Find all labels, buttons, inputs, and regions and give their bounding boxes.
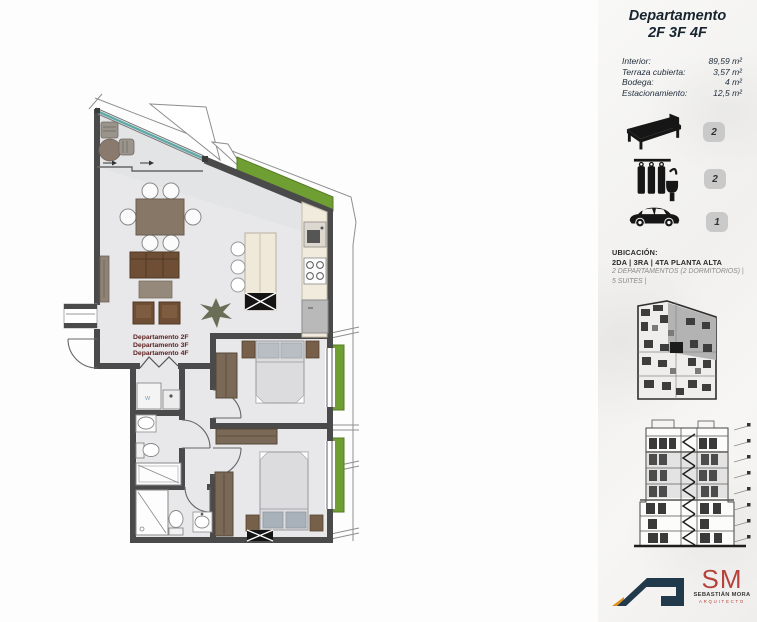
spec-label: Terraza cubierta: [622,67,685,78]
floorplan-brochure-page: { "panel": { "title": { "line1": "Depart… [0,0,757,622]
ubicacion-heading: UBICACIÓN: [612,248,752,258]
architect-name: SEBASTIÁN MORA [690,592,754,598]
spec-label: Interior: [622,56,651,67]
ubicacion-detail2: 5 SUITES | [612,277,752,287]
spec-label: Bodega: [622,77,654,88]
spec-value: 89,59 m² [708,56,742,67]
washer-label: W [145,396,151,402]
bed-icon [625,112,683,159]
spec-row-estacionamiento: Estacionamiento: 12,5 m² [622,88,742,99]
unit-label-3f: Departamento 3F [133,342,189,349]
architect-logo: SM SEBASTIÁN MORA ARQUITECTO [690,567,754,604]
spec-value: 12,5 m² [713,88,742,99]
unit-label-2f: Departamento 2F [133,334,189,341]
ag-developer-logo [612,578,684,606]
car-icon [626,202,682,235]
architect-role: ARQUITECTO [690,599,754,604]
spec-value: 3,57 m² [713,67,742,78]
bathroom-count-badge: 2 [704,169,726,189]
spec-row-terraza: Terraza cubierta: 3,57 m² [622,67,742,78]
parking-count-badge: 1 [706,212,728,232]
bedroom-count: 2 [711,127,717,138]
unit-label-4f: Departamento 4F [133,350,189,357]
panel-title: Departamento 2F 3F 4F [600,8,755,42]
ubicacion-detail1: 2 DEPARTAMENTOS (2 DORMITORIOS) | [612,267,752,277]
spec-label: Estacionamiento: [622,88,687,99]
spec-value: 4 m² [725,77,742,88]
bathroom-count: 2 [712,174,718,185]
bedroom-count-badge: 2 [703,122,725,142]
spec-list: Interior: 89,59 m² Terraza cubierta: 3,5… [622,56,742,98]
ubicacion-floors: 2DA | 3RA | 4TA PLANTA ALTA [612,258,752,268]
spec-row-interior: Interior: 89,59 m² [622,56,742,67]
building-section-thumbnail [634,420,751,546]
ubicacion-block: UBICACIÓN: 2DA | 3RA | 4TA PLANTA ALTA 2… [612,248,752,286]
key-plan-thumbnail [638,301,716,399]
shower-icon [633,157,679,208]
panel-title-line2: 2F 3F 4F [600,25,755,42]
panel-title-line1: Departamento [600,8,755,25]
parking-count: 1 [714,217,720,228]
unit-labels: Departamento 2F Departamento 3F Departam… [133,334,189,357]
bay-window [64,304,97,328]
spec-row-bodega: Bodega: 4 m² [622,77,742,88]
architect-initials: SM [690,567,754,591]
